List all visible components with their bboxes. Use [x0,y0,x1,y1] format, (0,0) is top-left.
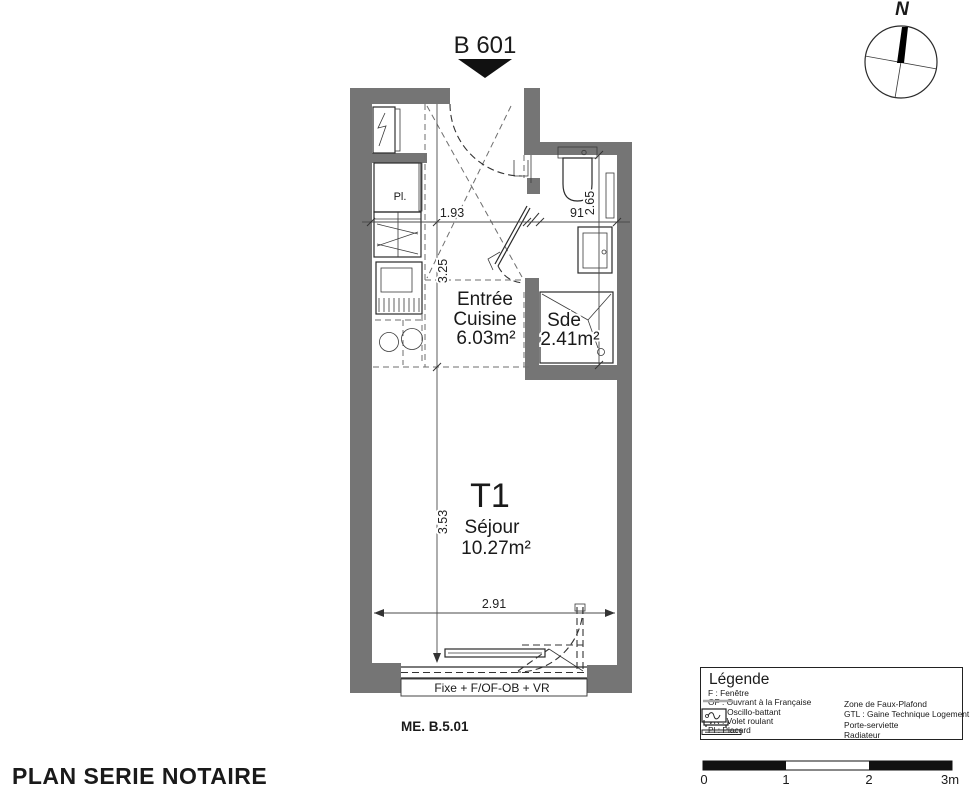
closet-label: Pl. [394,191,407,203]
sejour-room-label: Séjour [465,517,521,538]
dim-sejour-height: 3.53 [436,510,450,534]
floorplan-page: B 601 N [0,0,977,800]
kitchen-sink [376,262,422,314]
entree-area-label: 6.03m² [456,328,515,349]
legend-box: Légende F : Fenêtre OF : Ouvrant à la Fr… [700,667,963,740]
sde-room-label: Sde [547,310,581,331]
window-spec-label: Fixe + F/OF-OB + VR [434,681,550,695]
dim-sejour-width: 2.91 [482,597,506,611]
scale-bar: 0 1 2 3m [700,761,959,787]
dim-sde-height: 2.65 [583,191,597,215]
legend-symbol-label: Porte-serviette [844,720,898,730]
kitchen-cooktop [375,315,423,365]
closet [374,163,422,212]
washbasin [578,227,612,273]
sejour-area-label: 10.27m² [461,538,531,559]
plan-ref-code: ME. B.5.01 [401,719,469,734]
dimension-lines [362,104,630,663]
legend-symbol-row: Radiateur [701,729,880,740]
kitchen-appliance [374,212,421,257]
legend-title: Légende [709,671,769,689]
scale-tick-1: 1 [782,772,789,787]
scale-tick-2: 2 [865,772,872,787]
bathroom-door [488,206,539,283]
dim-entree-height: 3.25 [436,259,450,283]
towel-rail [606,173,614,218]
unit-title: B 601 [454,32,517,59]
sde-area-label: 2.41m² [540,329,599,350]
scale-tick-3: 3m [941,772,959,787]
entree-room-label2: Cuisine [453,309,516,330]
dim-sde-width: 91 [570,206,584,220]
entrance-arrow-icon [458,59,512,78]
legend-symbol-row: GTL : Gaine Technique Logement [701,708,969,719]
north-compass-icon: N [865,0,937,98]
dim-entree-width: 1.93 [440,206,464,220]
kitchen-gtl-unit [373,107,400,153]
plan-series-title: PLAN SERIE NOTAIRE [12,763,267,790]
legend-symbol-label: GTL : Gaine Technique Logement [844,709,969,719]
entree-room-label: Entrée [457,289,513,310]
north-label: N [895,0,910,20]
french-window: Fixe + F/OF-OB + VR [401,604,587,696]
entrance-door [450,104,522,176]
scale-tick-0: 0 [700,772,707,787]
radiator [445,649,545,657]
sejour-type-label: T1 [470,477,510,515]
legend-symbol-label: Zone de Faux-Plafond [844,699,927,709]
legend-symbol-label: Radiateur [844,730,880,740]
